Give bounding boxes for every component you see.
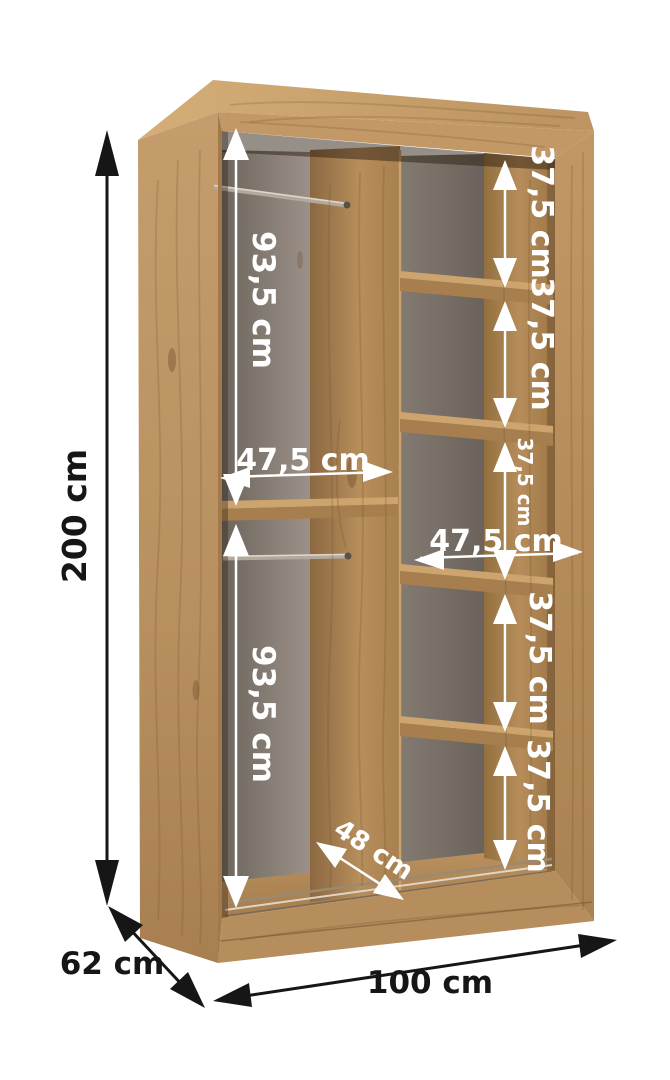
diagram-canvas: 200 cm 62 cm 100 cm 93,5 cm (0, 0, 670, 1080)
shelf-gap-label-3: 37,5 cm (513, 437, 537, 526)
depth-dimension-label: 62 cm (60, 946, 165, 982)
right-compartment-back-wall (400, 154, 484, 886)
width-dimension-label: 100 cm (367, 965, 493, 1001)
shelf-gap-label-4: 37,5 cm (522, 591, 557, 725)
left-inner-edge-shadow (222, 131, 228, 918)
frame-left-sliver (218, 112, 222, 963)
shelf-gap-label-2: 37,5 cm (524, 277, 559, 411)
shelf-gap-label-1: 37,5 cm (524, 145, 559, 279)
wardrobe-left-panel (138, 112, 218, 963)
height-dimension-label: 200 cm (55, 449, 94, 583)
wardrobe-dimension-diagram: 200 cm 62 cm 100 cm 93,5 cm (0, 0, 670, 1080)
shelf-gap-label-5: 37,5 cm (520, 739, 555, 873)
left-lower-section-label: 93,5 cm (245, 645, 281, 783)
left-width-label: 47,5 cm (236, 443, 370, 478)
left-upper-section-label: 93,5 cm (245, 231, 281, 369)
